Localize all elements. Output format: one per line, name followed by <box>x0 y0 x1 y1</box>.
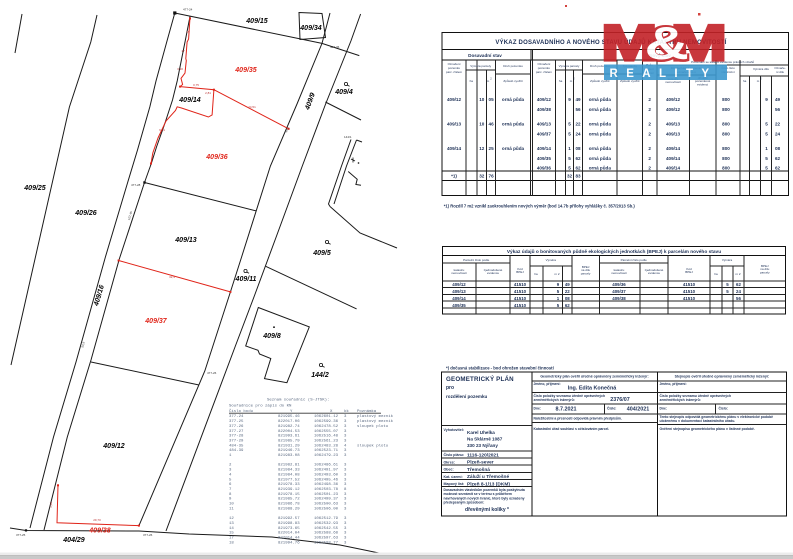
svg-text:*) dočasná stabilizace - bod o: *) dočasná stabilizace - bod ohrožen sta… <box>446 366 555 371</box>
svg-text:76: 76 <box>489 174 495 179</box>
svg-text:56: 56 <box>575 107 581 112</box>
svg-text:821978.33: 821978.33 <box>278 483 300 487</box>
svg-text:3: 3 <box>344 469 347 473</box>
svg-text:orná půda: orná půda <box>589 121 612 127</box>
svg-text:sloupek plotu: sloupek plotu <box>357 443 389 448</box>
svg-text:409/16: 409/16 <box>93 284 106 308</box>
svg-text:24: 24 <box>736 289 741 294</box>
svg-text:800: 800 <box>722 132 730 137</box>
svg-text:2: 2 <box>648 156 651 161</box>
svg-text:821931.29: 821931.29 <box>278 444 300 448</box>
svg-text:Kat. území:: Kat. území: <box>444 475 463 479</box>
svg-text:10: 10 <box>229 503 234 507</box>
svg-text:54,9: 54,9 <box>80 341 86 348</box>
svg-text:5: 5 <box>765 132 768 137</box>
svg-text:821982.81: 821982.81 <box>278 464 300 468</box>
svg-text:144/1: 144/1 <box>344 135 352 139</box>
svg-text:409/34: 409/34 <box>299 25 322 32</box>
svg-text:Náležitostmi a přesností odpov: Náležitostmi a přesností odpovídá právní… <box>534 417 622 421</box>
svg-text:18: 18 <box>229 541 234 545</box>
svg-text:orná půda: orná půda <box>589 96 612 102</box>
svg-text:484-39: 484-39 <box>229 449 244 453</box>
svg-text:Ověření stejnopisu geometrické: Ověření stejnopisu geometrického plánu v… <box>660 427 755 431</box>
svg-text:821978.15: 821978.15 <box>278 493 300 497</box>
svg-text:2: 2 <box>648 122 651 127</box>
svg-text:Okres:: Okres: <box>444 460 455 464</box>
svg-text:3: 3 <box>344 527 347 531</box>
svg-text:24,51: 24,51 <box>248 105 256 109</box>
svg-text:3: 3 <box>344 473 347 477</box>
svg-text:plastový mezník: plastový mezník <box>357 414 394 419</box>
svg-text:1062598.77: 1062598.77 <box>314 541 339 545</box>
svg-text:1062493.60: 1062493.60 <box>314 473 339 477</box>
svg-text:nemovitostí: nemovitostí <box>611 271 627 275</box>
svg-text:Druh pozemku: Druh pozemku <box>503 64 523 68</box>
svg-text:821983.08: 821983.08 <box>278 454 300 458</box>
svg-text:821998.83: 821998.83 <box>278 522 300 526</box>
svg-text:17: 17 <box>181 49 185 53</box>
svg-text:Výměra parcely: Výměra parcely <box>470 64 491 68</box>
svg-text:409/35: 409/35 <box>234 67 257 74</box>
svg-text:3: 3 <box>344 420 347 424</box>
svg-text:2376/07: 2376/07 <box>610 397 630 403</box>
svg-text:9: 9 <box>765 97 768 102</box>
svg-text:3: 3 <box>344 507 347 511</box>
svg-text:24: 24 <box>575 132 581 137</box>
svg-text:15: 15 <box>229 532 234 536</box>
svg-text:Výměra: Výměra <box>722 258 733 262</box>
svg-text:uloženému v dokumentaci katast: uloženému v dokumentaci katastrálního úř… <box>660 419 736 423</box>
svg-text:32,4: 32,4 <box>169 275 175 279</box>
svg-text:1: 1 <box>229 454 232 458</box>
svg-text:821977.52: 821977.52 <box>278 478 300 482</box>
svg-text:parcely: parcely <box>760 270 770 274</box>
svg-text:484-35: 484-35 <box>229 444 244 448</box>
svg-text:11: 11 <box>229 507 234 511</box>
svg-text:409/4: 409/4 <box>334 89 353 96</box>
svg-text:3: 3 <box>344 498 347 502</box>
svg-text:orná půda: orná půda <box>589 145 612 151</box>
svg-text:3: 3 <box>344 464 347 468</box>
svg-text:822017.06: 822017.06 <box>278 420 300 424</box>
svg-text:409/35: 409/35 <box>537 156 551 161</box>
svg-text:94,2: 94,2 <box>284 126 290 133</box>
svg-text:821992.57: 821992.57 <box>278 517 300 521</box>
svg-text:62: 62 <box>575 156 581 161</box>
svg-text:800: 800 <box>722 156 730 161</box>
svg-text:409/38: 409/38 <box>612 296 626 301</box>
svg-text:22: 22 <box>565 289 570 294</box>
svg-text:377-25: 377-25 <box>16 533 26 537</box>
svg-text:822014.44: 822014.44 <box>278 537 300 541</box>
svg-text:1062486.61: 1062486.61 <box>314 464 339 468</box>
svg-text:Výměra dílu: Výměra dílu <box>753 67 769 71</box>
svg-text:377-27: 377-27 <box>229 430 244 434</box>
svg-text:3: 3 <box>344 532 347 536</box>
svg-text:800: 800 <box>722 122 730 127</box>
svg-text:5: 5 <box>568 132 571 137</box>
svg-text:Parcelní číslo podle: Parcelní číslo podle <box>621 258 648 262</box>
svg-text:1062542.55: 1062542.55 <box>314 527 339 531</box>
svg-text:Číslo:: Číslo: <box>719 406 728 411</box>
svg-text:Souřadnice pro zápis do KN: Souřadnice pro zápis do KN <box>229 404 292 409</box>
svg-text:Obec:: Obec: <box>444 468 454 472</box>
svg-text:evidence: evidence <box>487 271 499 275</box>
svg-text:4: 4 <box>229 473 232 477</box>
svg-text:2: 2 <box>648 97 651 102</box>
svg-text:409/36: 409/36 <box>537 166 551 171</box>
svg-text:dřevěnými kolíky *: dřevěnými kolíky * <box>465 507 509 513</box>
svg-text:4: 4 <box>344 444 347 448</box>
svg-text:zeměměřických inženýrů:: zeměměřických inženýrů: <box>534 398 575 402</box>
svg-text:9,01: 9,01 <box>159 128 165 132</box>
svg-text:1062483.28: 1062483.28 <box>314 444 339 448</box>
svg-text:Katastrální úřad souhlasí s oč: Katastrální úřad souhlasí s očíslováním … <box>534 427 610 431</box>
svg-text:477-24: 477-24 <box>183 8 193 12</box>
svg-text:409/38: 409/38 <box>537 107 551 112</box>
svg-text:evidenci: evidenci <box>697 82 708 86</box>
svg-text:ha: ha <box>534 272 538 276</box>
svg-text:62: 62 <box>775 156 781 161</box>
svg-text:821988.29: 821988.29 <box>278 507 300 511</box>
svg-text:41510: 41510 <box>514 289 527 294</box>
svg-text:377-24: 377-24 <box>229 415 244 419</box>
svg-text:GEOMETRICKÝ PLÁN: GEOMETRICKÝ PLÁN <box>446 376 514 383</box>
svg-text:409/14: 409/14 <box>666 156 680 161</box>
svg-text:409/12: 409/12 <box>102 443 125 450</box>
svg-text:10: 10 <box>479 97 485 102</box>
svg-text:3: 3 <box>344 503 347 507</box>
svg-text:Parcelní číslo podle: Parcelní číslo podle <box>463 258 490 262</box>
svg-text:477-26: 477-26 <box>207 371 217 375</box>
svg-text:Plzeň-sever: Plzeň-sever <box>467 460 494 466</box>
svg-text:5: 5 <box>557 303 560 308</box>
svg-text:pro: pro <box>446 385 454 391</box>
svg-text:25: 25 <box>489 146 495 151</box>
svg-text:5: 5 <box>568 166 571 171</box>
svg-text:5: 5 <box>229 478 232 482</box>
svg-text:41510: 41510 <box>683 282 696 287</box>
svg-text:1062503.78: 1062503.78 <box>314 488 339 492</box>
svg-text:1062555.07: 1062555.07 <box>314 430 339 434</box>
svg-text:08: 08 <box>775 146 781 151</box>
svg-text:409/14: 409/14 <box>452 296 466 301</box>
svg-text:3: 3 <box>344 537 347 541</box>
svg-text:821984.08: 821984.08 <box>278 473 300 477</box>
svg-text:3: 3 <box>344 435 347 439</box>
svg-text:800: 800 <box>722 146 730 151</box>
svg-text:orná půda: orná půda <box>589 165 612 171</box>
svg-text:5: 5 <box>765 122 768 127</box>
svg-text:Karel Uhelka: Karel Uhelka <box>467 430 495 435</box>
svg-text:REALITY: REALITY <box>610 68 718 80</box>
svg-text:Třemošná: Třemošná <box>467 467 490 473</box>
svg-text:Dne:: Dne: <box>534 407 542 411</box>
svg-text:9: 9 <box>557 282 560 287</box>
svg-text:m 2: m 2 <box>735 272 740 276</box>
svg-text:409/14: 409/14 <box>447 146 461 151</box>
svg-text:ha: ha <box>559 79 563 83</box>
svg-text:9: 9 <box>229 498 232 502</box>
svg-text:Stejnopis ověřil úředně oprávn: Stejnopis ověřil úředně oprávněný zeměmě… <box>675 375 770 379</box>
svg-text:46: 46 <box>489 122 495 127</box>
svg-text:Jméno, příjmení:: Jméno, příjmení: <box>534 382 561 386</box>
svg-text:56: 56 <box>775 107 781 112</box>
svg-text:800: 800 <box>722 107 730 112</box>
svg-text:Vyhotovitel:: Vyhotovitel: <box>444 428 464 432</box>
svg-text:409/8: 409/8 <box>262 333 281 340</box>
svg-text:2: 2 <box>648 166 651 171</box>
svg-text:08: 08 <box>575 146 581 151</box>
svg-text:3: 3 <box>344 449 347 453</box>
svg-text:821994.76: 821994.76 <box>278 541 300 545</box>
svg-text:409/12: 409/12 <box>447 97 461 102</box>
svg-text:nemovitostí: nemovitostí <box>665 80 681 84</box>
svg-text:Způsob využití: Způsob využití <box>503 79 523 83</box>
svg-text:409/38: 409/38 <box>88 528 111 535</box>
svg-text:1062588.68: 1062588.68 <box>314 532 339 536</box>
svg-text:24: 24 <box>775 132 781 137</box>
svg-text:409/12: 409/12 <box>666 107 680 112</box>
svg-text:3: 3 <box>344 415 347 419</box>
svg-text:Číslo:: Číslo: <box>607 406 616 411</box>
svg-text:62: 62 <box>775 166 781 171</box>
svg-text:32: 32 <box>479 174 485 179</box>
svg-text:1062506.00: 1062506.00 <box>314 507 339 511</box>
svg-text:rozdělení pozemku: rozdělení pozemku <box>446 394 488 399</box>
svg-text:409/14: 409/14 <box>666 146 680 151</box>
svg-text:409/14: 409/14 <box>178 97 201 104</box>
svg-text:3: 3 <box>344 478 347 482</box>
svg-text:49: 49 <box>775 97 781 102</box>
svg-text:Dosavadní stav: Dosavadní stav <box>468 53 502 58</box>
svg-text:62: 62 <box>736 282 741 287</box>
svg-text:5: 5 <box>765 166 768 171</box>
svg-text:1062601.12: 1062601.12 <box>314 415 339 419</box>
svg-text:ha: ha <box>714 272 718 276</box>
svg-text:orná půda: orná půda <box>502 121 525 127</box>
svg-text:409/25: 409/25 <box>23 185 46 192</box>
svg-text:Výměra: Výměra <box>546 258 557 262</box>
svg-text:6: 6 <box>229 483 232 487</box>
svg-text:2: 2 <box>490 77 492 81</box>
svg-text:1062561.23: 1062561.23 <box>314 440 339 444</box>
svg-text:3: 3 <box>344 493 347 497</box>
svg-text:822014.04: 822014.04 <box>278 532 300 536</box>
svg-text:3: 3 <box>344 454 347 458</box>
svg-text:ní dílu: ní dílu <box>776 70 785 74</box>
svg-text:3: 3 <box>344 541 347 545</box>
svg-text:821985.79: 821985.79 <box>278 440 300 444</box>
svg-text:nemovitostí: nemovitostí <box>451 271 467 275</box>
svg-text:1: 1 <box>765 146 768 151</box>
svg-text:Mapový list:: Mapový list: <box>444 482 465 486</box>
svg-text:409/13: 409/13 <box>452 289 466 294</box>
svg-text:62: 62 <box>565 303 570 308</box>
svg-text:Jméno, příjmení:: Jméno, příjmení: <box>660 382 687 386</box>
svg-text:409/14: 409/14 <box>666 166 680 171</box>
svg-text:1062478.52: 1062478.52 <box>314 425 339 429</box>
svg-text:parcely: parcely <box>581 271 591 275</box>
svg-text:1062498.36: 1062498.36 <box>314 483 339 487</box>
svg-text:144/2: 144/2 <box>311 372 329 379</box>
svg-text:3: 3 <box>344 430 347 434</box>
svg-text:8: 8 <box>344 488 347 492</box>
svg-text:822004.53: 822004.53 <box>278 430 300 434</box>
svg-text:parc. číslem: parc. číslem <box>536 70 553 74</box>
svg-text:5: 5 <box>726 282 729 287</box>
svg-text:1: 1 <box>557 296 560 301</box>
svg-text:32: 32 <box>567 174 573 179</box>
svg-text:ha: ha <box>470 79 474 83</box>
svg-text:orná půda: orná půda <box>589 155 612 161</box>
svg-text:Plzeň 8-1/13 (DKM): Plzeň 8-1/13 (DKM) <box>467 481 510 487</box>
svg-text:Geometrický plán ověřil úředně: Geometrický plán ověřil úředně oprávněný… <box>540 375 648 379</box>
svg-text:484-36: 484-36 <box>330 45 340 49</box>
svg-text:409/35: 409/35 <box>452 303 466 308</box>
svg-text:3: 3 <box>344 483 347 487</box>
svg-text:41510: 41510 <box>514 303 527 308</box>
svg-text:377-26: 377-26 <box>229 425 244 429</box>
svg-text:&: & <box>644 18 689 70</box>
svg-text:BPEJ: BPEJ <box>516 270 524 274</box>
svg-text:330 23 Nýřany: 330 23 Nýřany <box>467 443 498 448</box>
svg-text:17: 17 <box>229 537 234 541</box>
svg-text:3: 3 <box>344 440 347 444</box>
svg-text:377-25: 377-25 <box>229 420 244 424</box>
svg-text:821985.72: 821985.72 <box>278 498 300 502</box>
svg-text:5: 5 <box>765 156 768 161</box>
svg-text:Na Sklárně 1087: Na Sklárně 1087 <box>467 437 503 442</box>
svg-text:2: 2 <box>573 77 575 81</box>
svg-text:409/12: 409/12 <box>537 97 551 102</box>
svg-text:zeměměřických inženýrů:: zeměměřických inženýrů: <box>660 398 701 402</box>
svg-text:Číslo plánu:: Číslo plánu: <box>444 452 465 457</box>
svg-text:821986.78: 821986.78 <box>278 503 300 507</box>
svg-text:evidence: evidence <box>648 271 660 275</box>
svg-text:377-29: 377-29 <box>229 440 244 444</box>
svg-text:821939.12: 821939.12 <box>278 488 300 492</box>
svg-text:800: 800 <box>722 166 730 171</box>
svg-text:409/11: 409/11 <box>235 276 257 283</box>
svg-text:41510: 41510 <box>514 296 527 301</box>
svg-text:plastový mezník: plastový mezník <box>357 419 394 424</box>
svg-text:409/5: 409/5 <box>312 250 331 257</box>
svg-text:sloupek plotu: sloupek plotu <box>357 424 389 429</box>
svg-text:předepsaným způsobem:: předepsaným způsobem: <box>444 501 485 505</box>
svg-text:49: 49 <box>565 282 570 287</box>
svg-text:477-28: 477-28 <box>131 183 141 187</box>
svg-text:409/13: 409/13 <box>447 122 461 127</box>
svg-text:1062499.37: 1062499.37 <box>314 498 339 502</box>
svg-text:1116-120/2021: 1116-120/2021 <box>467 453 499 459</box>
svg-text:409/13: 409/13 <box>666 132 680 137</box>
svg-text:41510: 41510 <box>683 289 696 294</box>
svg-text:409/36: 409/36 <box>612 282 626 287</box>
svg-text:409/37: 409/37 <box>144 318 168 325</box>
svg-text:7: 7 <box>229 488 232 492</box>
svg-text:15: 15 <box>186 30 190 34</box>
svg-text:3: 3 <box>344 522 347 526</box>
svg-text:62: 62 <box>575 166 581 171</box>
svg-text:404/2021: 404/2021 <box>627 407 649 413</box>
svg-text:821984.33: 821984.33 <box>278 469 300 473</box>
svg-text:*1): *1) <box>451 174 457 179</box>
svg-text:08: 08 <box>565 296 570 301</box>
svg-text:22: 22 <box>775 122 781 127</box>
svg-text:821993.61: 821993.61 <box>278 435 300 439</box>
svg-text:BPEJ: BPEJ <box>685 270 693 274</box>
svg-text:409/13: 409/13 <box>537 122 551 127</box>
svg-text:Záluží u Třemošné: Záluží u Třemošné <box>467 474 509 480</box>
svg-text:409/14: 409/14 <box>537 146 551 151</box>
svg-text:Výkaz údajů o bonitovaných půd: Výkaz údajů o bonitovaných půdně ekologi… <box>507 248 721 255</box>
svg-text:409/12: 409/12 <box>666 97 680 102</box>
svg-text:409/13: 409/13 <box>666 122 680 127</box>
svg-text:409/37: 409/37 <box>537 132 551 137</box>
svg-text:1062500.63: 1062500.63 <box>314 503 339 507</box>
svg-text:8.7.2021: 8.7.2021 <box>556 407 577 413</box>
svg-text:05: 05 <box>489 97 495 102</box>
svg-text:409/9: 409/9 <box>304 92 317 112</box>
svg-text:22: 22 <box>575 122 581 127</box>
svg-text:821982.74: 821982.74 <box>278 425 300 429</box>
svg-text:1,10: 1,10 <box>49 502 53 508</box>
svg-text:orná půda: orná půda <box>502 96 525 102</box>
svg-text:821973.65: 821973.65 <box>278 527 300 531</box>
svg-text:404/29: 404/29 <box>62 537 85 544</box>
svg-text:2: 2 <box>760 77 762 81</box>
svg-text:10: 10 <box>479 122 485 127</box>
svg-text:3: 3 <box>229 469 232 473</box>
svg-text:Dne:: Dne: <box>660 407 668 411</box>
svg-text:1: 1 <box>568 146 571 151</box>
svg-text:409/37: 409/37 <box>612 289 626 294</box>
svg-text:0,75: 0,75 <box>193 83 199 87</box>
svg-text:12: 12 <box>229 517 234 521</box>
svg-text:29,70: 29,70 <box>93 518 101 522</box>
svg-text:409/15: 409/15 <box>245 18 268 25</box>
svg-text:2: 2 <box>648 132 651 137</box>
svg-text:800: 800 <box>722 97 730 102</box>
svg-text:m 2: m 2 <box>554 272 559 276</box>
svg-text:2: 2 <box>648 107 651 112</box>
svg-text:*1) Rozdíl 7 m2 vznikl zaokrou: *1) Rozdíl 7 m2 vznikl zaokrouhlením nov… <box>444 204 636 209</box>
svg-text:Seznam souřadnic (S-JTSK):: Seznam souřadnic (S-JTSK): <box>267 398 329 403</box>
svg-text:1062501.23: 1062501.23 <box>314 493 339 497</box>
svg-text:1062512.79: 1062512.79 <box>314 517 339 521</box>
svg-text:377-28: 377-28 <box>229 435 244 439</box>
svg-text:Ing. Edita Konečná: Ing. Edita Konečná <box>568 386 618 392</box>
svg-text:1062491.97: 1062491.97 <box>314 469 339 473</box>
svg-text:83: 83 <box>575 174 581 179</box>
svg-text:orná půda: orná půda <box>589 131 612 137</box>
svg-text:2,81: 2,81 <box>205 91 211 95</box>
svg-text:13: 13 <box>229 522 234 526</box>
svg-text:409/12: 409/12 <box>452 282 466 287</box>
svg-text:5: 5 <box>557 289 560 294</box>
svg-text:3: 3 <box>344 425 347 429</box>
svg-text:12: 12 <box>479 146 485 151</box>
svg-text:409/13: 409/13 <box>174 237 197 244</box>
svg-text:41510: 41510 <box>514 282 527 287</box>
svg-text:409/26: 409/26 <box>74 210 97 217</box>
svg-text:56: 56 <box>736 296 741 301</box>
svg-text:Výměra parcely: Výměra parcely <box>559 64 580 68</box>
svg-text:1062597.63: 1062597.63 <box>314 537 339 541</box>
svg-text:377-26: 377-26 <box>143 533 153 537</box>
svg-text:409/36: 409/36 <box>205 154 228 161</box>
